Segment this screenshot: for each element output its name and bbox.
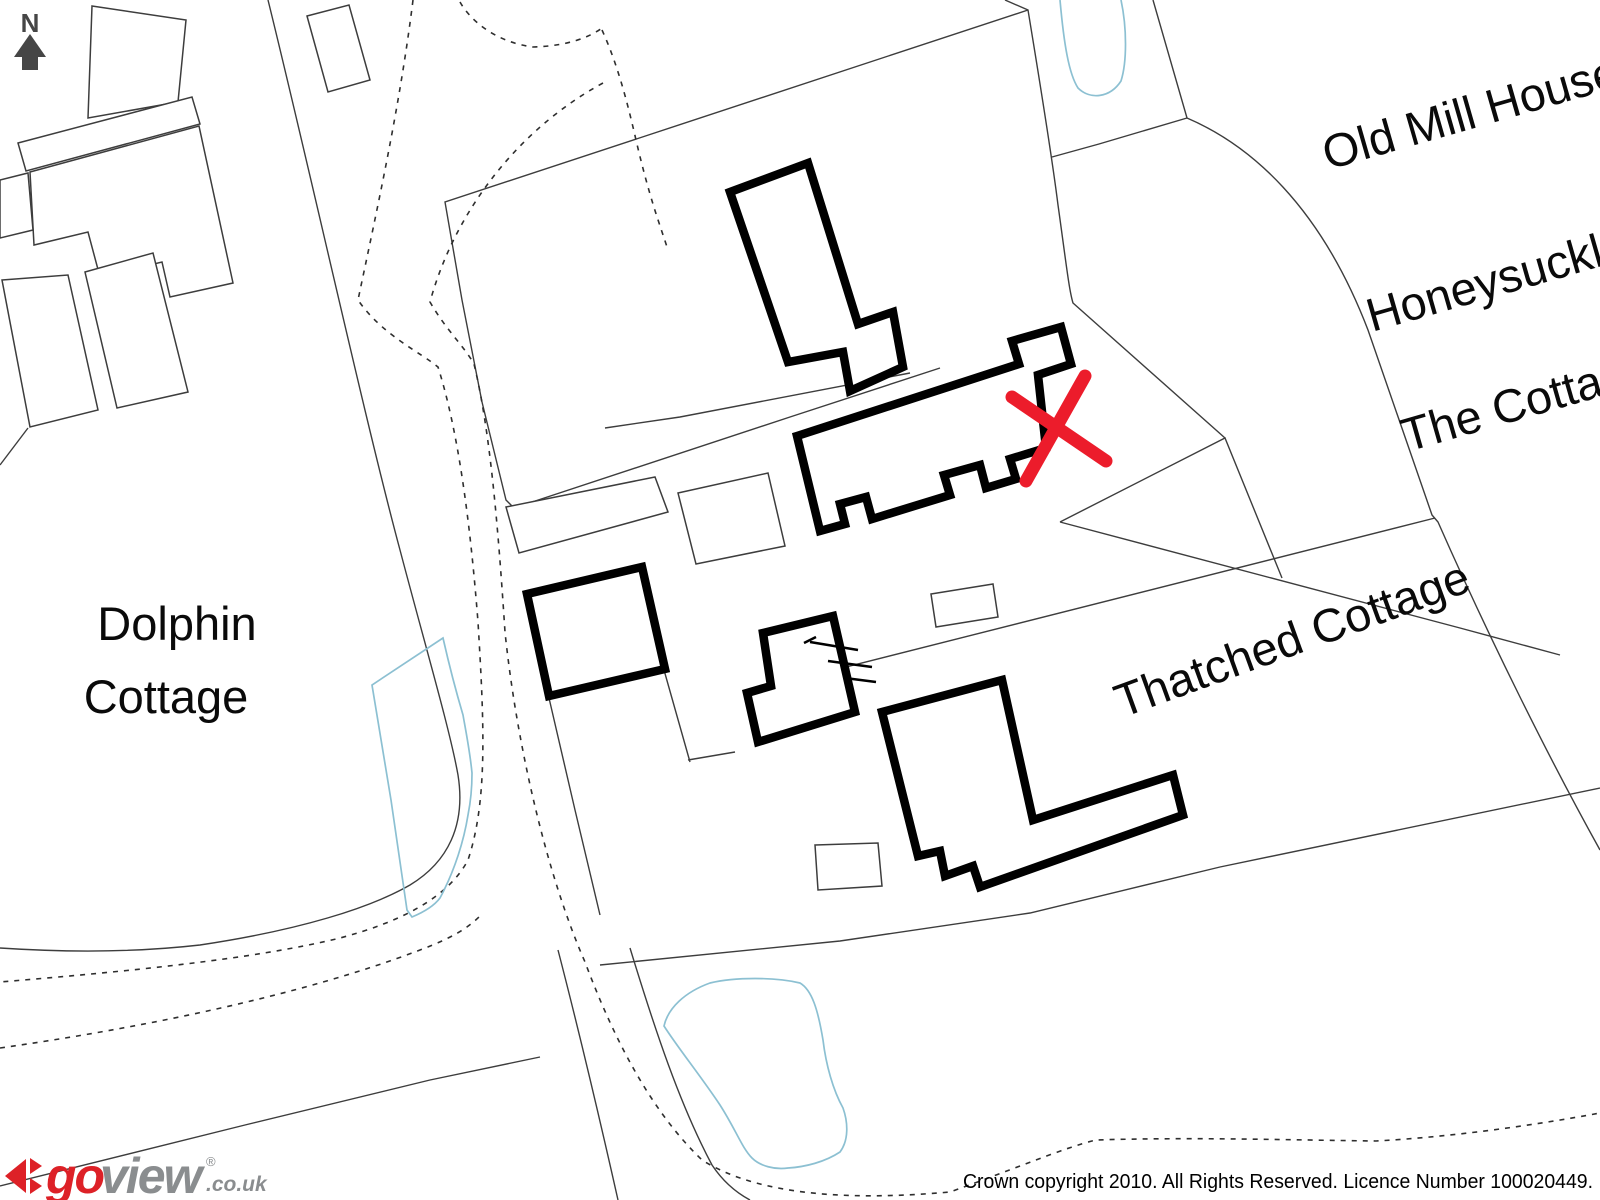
building-bold-main [797,327,1071,531]
parcel-line-centre [482,402,514,508]
stream-top-right [1060,0,1126,96]
logo-triangle [30,1158,42,1174]
logo-triangle [30,1178,42,1194]
label-honeysuckle: Honeysuckle [1360,216,1600,341]
building-bold-tall [730,163,903,391]
label-thatched-cottage: Thatched Cottage [1107,550,1476,728]
site-plan-map: Dolphin Cottage Old Mill House Honeysuck… [0,0,1600,1200]
building-outline [307,5,370,92]
logo-text-couk: .co.uk [206,1173,268,1196]
building-outline [678,473,785,564]
building-outline [815,843,882,890]
logo-registered-mark: ® [206,1154,216,1169]
label-dolphin-cottage-line1: Dolphin [97,597,256,650]
building-outline [0,173,33,238]
parcel-bit-west [0,428,28,465]
label-dolphin-cottage-line2: Cottage [84,670,249,723]
building-bold-small-l [747,616,855,742]
water-features [372,0,1126,1169]
north-arrow-stem [22,56,38,70]
label-the-cottage: The Cottage [1395,339,1600,461]
building-outline [506,477,668,553]
logo-text-view: view [100,1148,206,1200]
goview-logo: go view ® .co.uk [5,1148,268,1200]
goview-arrow-icon [5,1158,42,1194]
building-outline [931,584,998,627]
copyright-notice: Crown copyright 2010. All Rights Reserve… [963,1171,1593,1193]
north-label: N [21,8,40,38]
buildings-bold [527,163,1183,887]
north-arrow: N [14,8,46,70]
logo-text-go: go [45,1148,104,1200]
map-canvas: Dolphin Cottage Old Mill House Honeysuck… [0,0,1600,1200]
dashed-driveway-north [460,2,602,47]
building-bold-square [527,567,665,696]
parcel-line-top-right [1052,118,1187,157]
north-arrow-head [14,34,46,57]
dashed-southwest [0,916,480,1048]
building-outline [88,6,186,118]
road-south-east-edge [630,948,750,1200]
parcel-bits-centre [549,670,735,915]
label-old-mill-house: Old Mill House [1316,44,1600,179]
pond-south [664,979,847,1169]
logo-triangle [5,1159,26,1193]
building-outline [2,275,98,427]
road-south-west-edge [558,950,618,1200]
